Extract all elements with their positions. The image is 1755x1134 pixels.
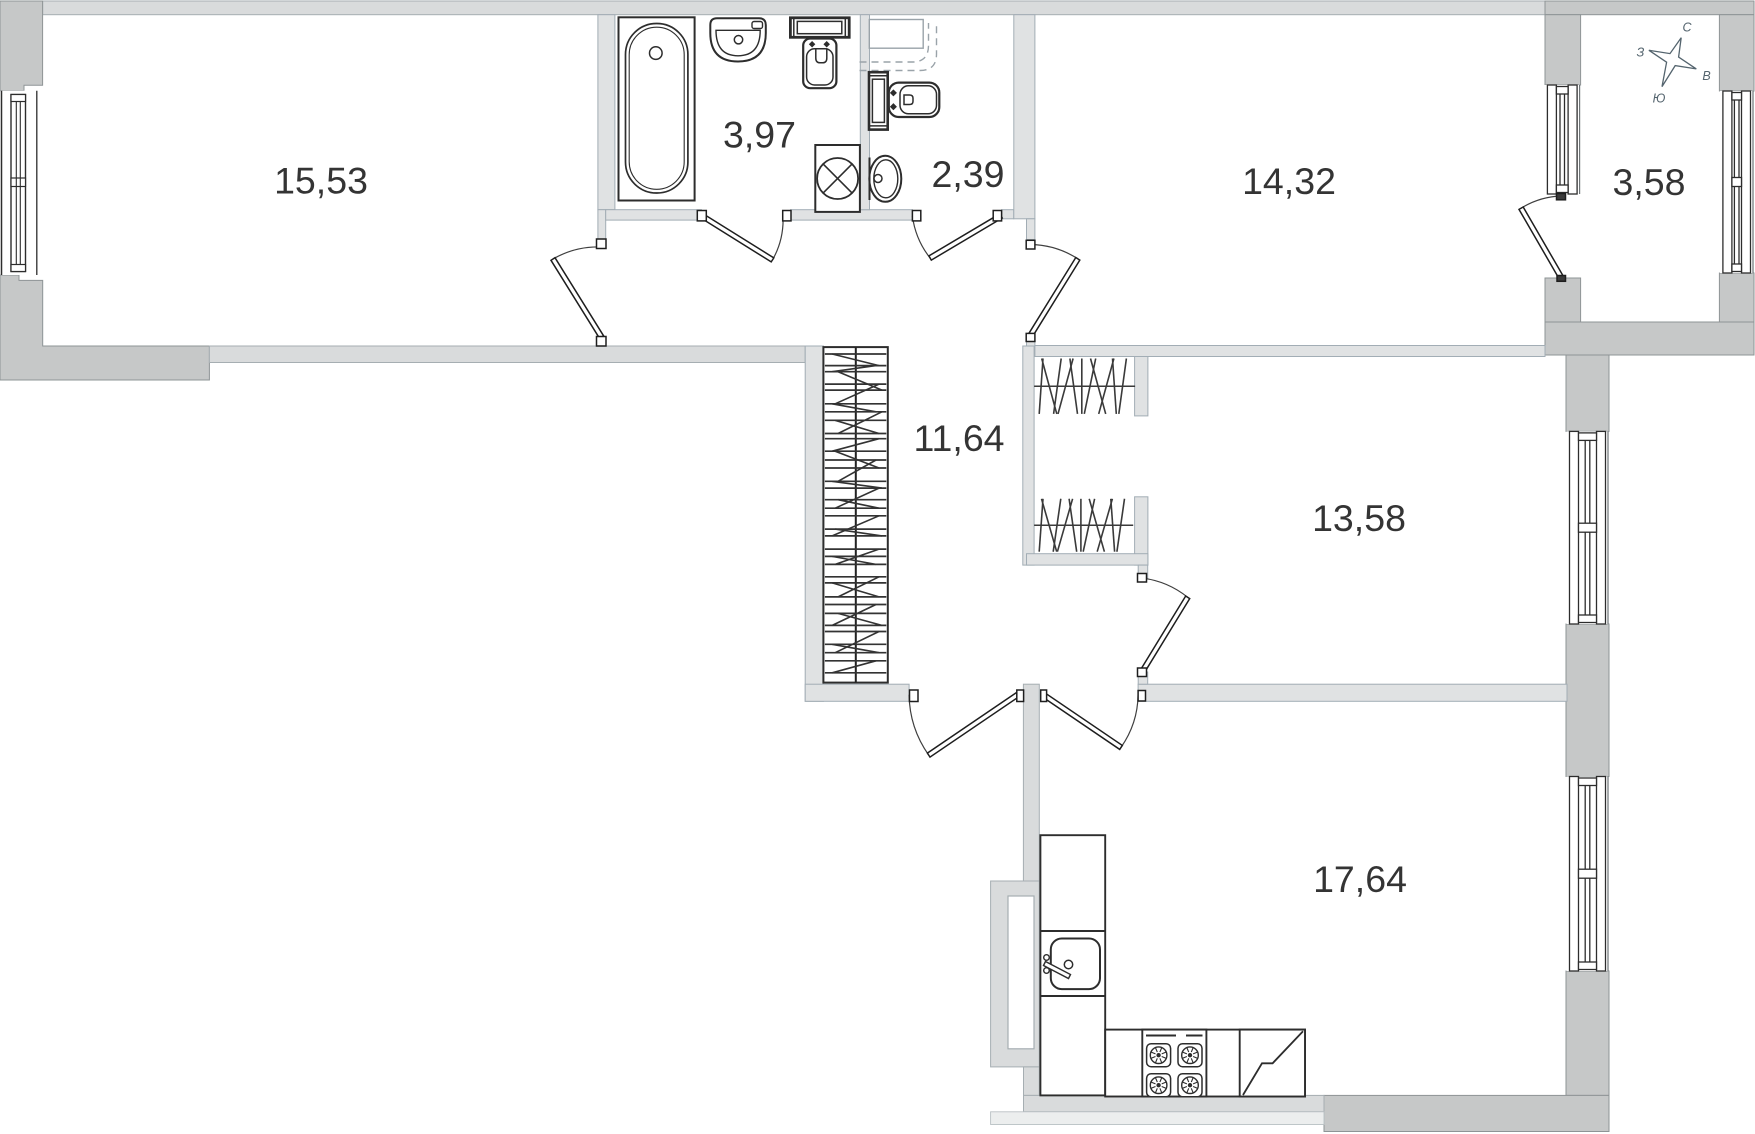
svg-text:13,58: 13,58 [1312,497,1406,539]
svg-text:Ю: Ю [1653,92,1666,106]
svg-text:17,64: 17,64 [1313,858,1407,900]
svg-text:С: С [1682,21,1692,35]
svg-text:15,53: 15,53 [274,160,368,202]
svg-text:3,97: 3,97 [723,114,796,156]
svg-text:2,39: 2,39 [932,153,1005,195]
svg-text:11,64: 11,64 [913,417,1004,459]
svg-text:В: В [1702,69,1710,83]
svg-text:З: З [1637,45,1645,59]
svg-text:3,58: 3,58 [1613,161,1686,203]
svg-text:14,32: 14,32 [1242,160,1336,202]
